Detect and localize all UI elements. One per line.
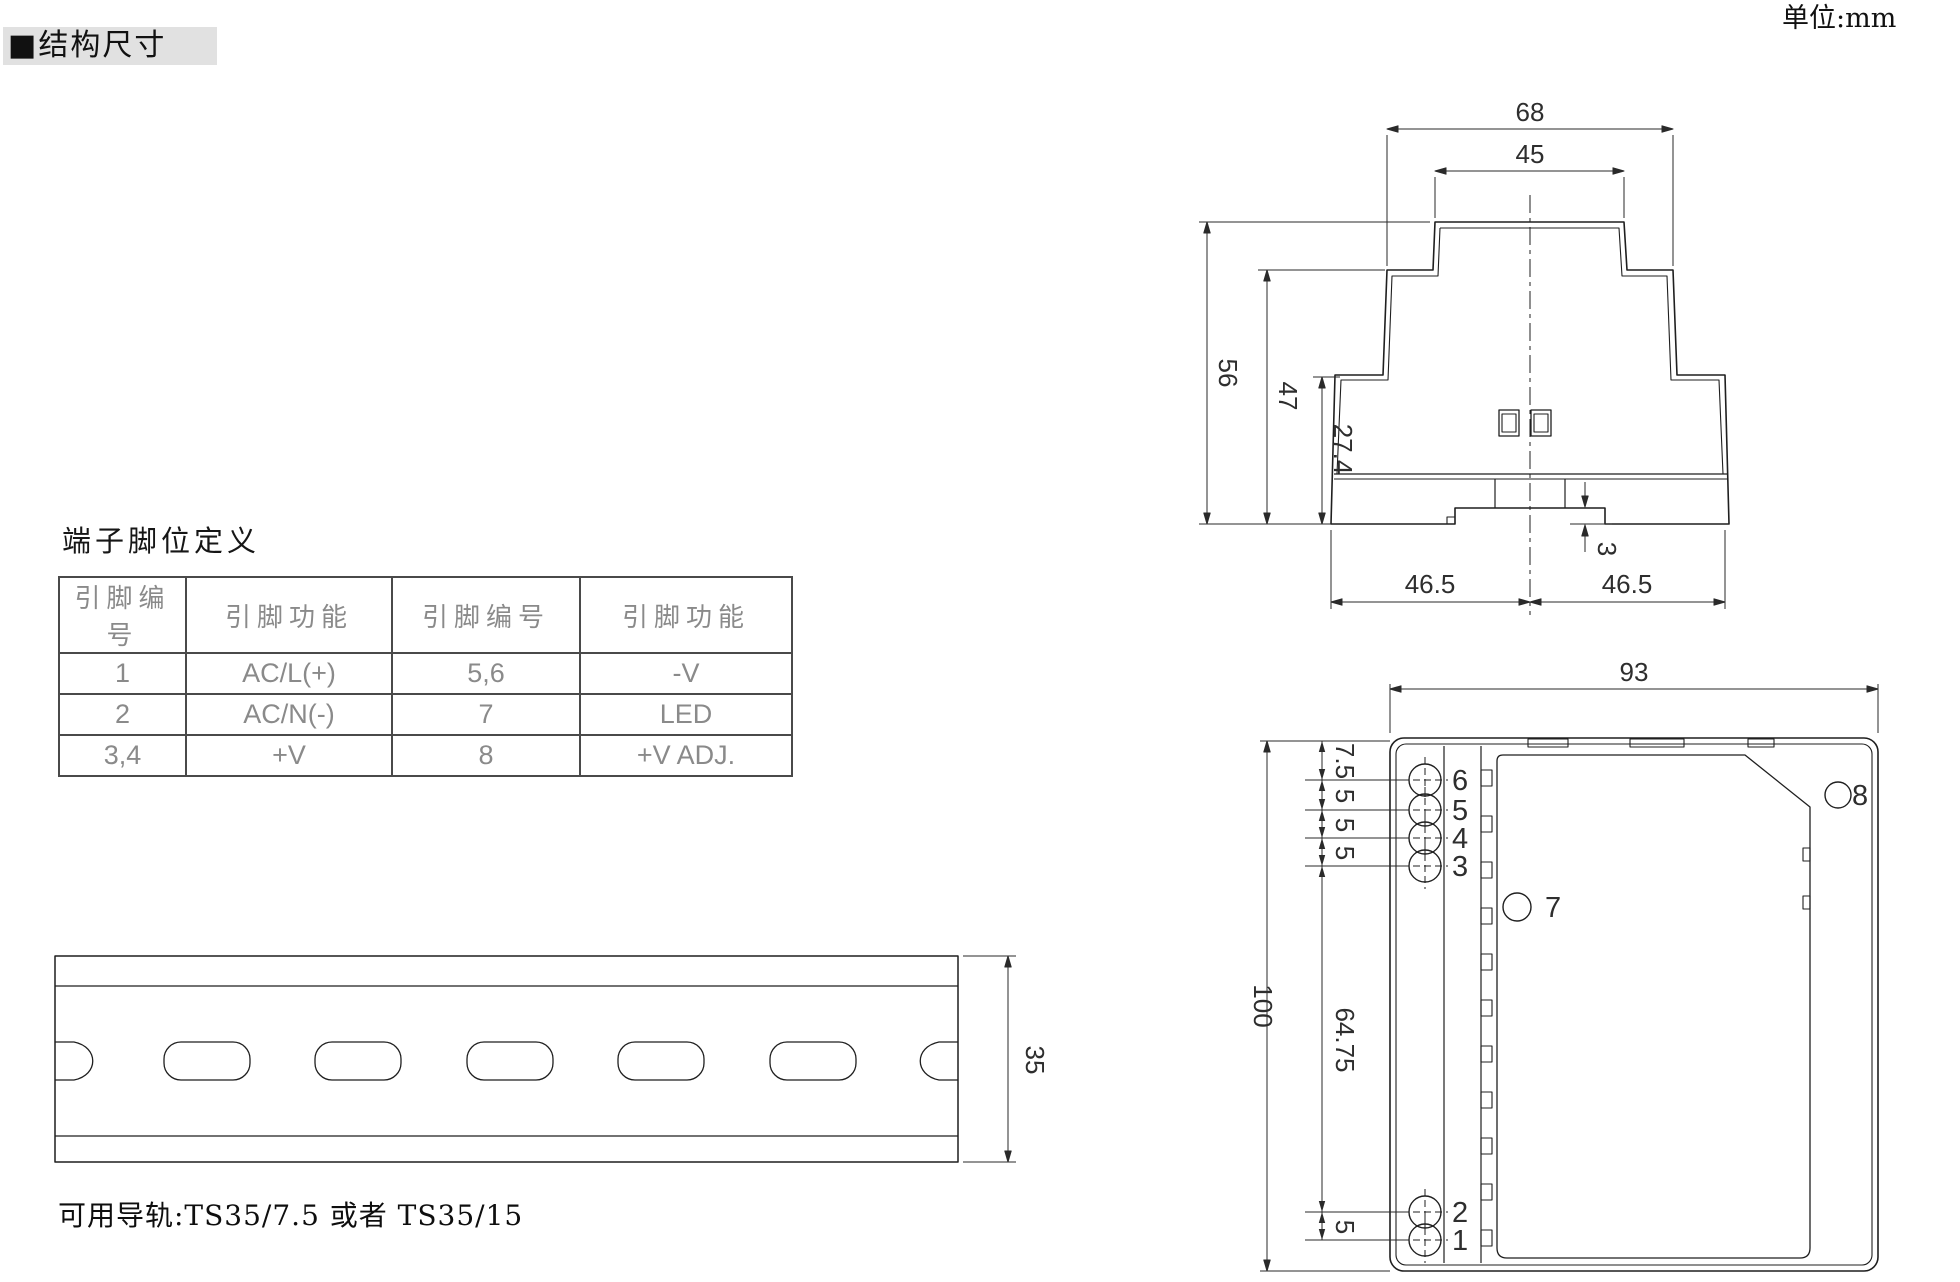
adj-potentiometer [1825,782,1851,808]
arrowhead [1662,126,1673,132]
terminal-crosshairs [1402,757,1448,1263]
arrowhead [1390,686,1401,692]
rail-slot-half-right [920,1042,958,1080]
arrowhead [1530,599,1541,605]
arrowhead [1519,599,1530,605]
foot-hook-notch [1447,517,1455,524]
arrowhead [1204,513,1210,524]
arrowhead [1714,599,1725,605]
arrowhead [1867,686,1878,692]
dim-label-5b: 5 [1330,818,1360,832]
arrowhead [1582,525,1588,536]
rail-slots [55,1042,958,1080]
din-rail-drawing [55,956,958,1162]
arrowhead [1387,126,1398,132]
led-window [1503,893,1531,921]
dim-label-100: 100 [1248,984,1278,1027]
arrowhead [1005,1151,1011,1162]
right-edge-nubs [1803,848,1810,909]
pin-number-labels: 6 5 4 3 2 1 7 8 [1452,765,1868,1257]
arrowhead [1005,956,1011,967]
dimension-drawings: 68 45 56 47 27.4 3 46.5 46.5 [0,0,1960,1282]
arrowhead [1264,270,1270,281]
pin-label-1: 1 [1452,1225,1468,1257]
dim-label-5c: 5 [1330,846,1360,860]
rail-slot-half-left [55,1042,93,1080]
arrowhead [1264,513,1270,524]
arrowhead [1264,741,1270,752]
arrowhead [1319,377,1325,388]
dim-label-27-4: 27.4 [1328,424,1358,475]
arrowhead [1264,1260,1270,1271]
dim-label-35: 35 [1020,1046,1050,1075]
rail-outline [55,956,958,1162]
top-view-drawing [1331,195,1729,615]
arrowhead [1582,496,1588,507]
pin-label-8: 8 [1852,780,1868,812]
serration-teeth [1481,770,1492,1246]
dim-label-56: 56 [1213,359,1243,388]
unit-inner-wall-right [1440,228,1723,474]
arrowhead [1613,168,1624,174]
arrowhead [1204,222,1210,233]
arrowhead [1319,513,1325,524]
dim-label-68: 68 [1516,97,1545,127]
dim-label-64-75: 64.75 [1330,1007,1360,1072]
arrowhead [1435,168,1446,174]
din-rail-dimension: 35 [963,956,1050,1162]
arrowhead [1331,599,1342,605]
dim-label-3: 3 [1592,542,1622,556]
dim-label-45: 45 [1516,139,1545,169]
dim-label-46-5-right: 46.5 [1602,569,1653,599]
pin-label-6: 6 [1452,765,1468,797]
dim-label-5-bottom: 5 [1330,1220,1360,1234]
vent-square-left-inner [1502,414,1516,432]
datasheet-page: ■结构尺寸 单位:mm 端子脚位定义 引脚编号 引脚功能 引脚编号 引脚功能 1… [0,0,1960,1282]
center-panel [1497,755,1810,1258]
top-view-dimensions [1199,126,1725,609]
dim-label-46-5-left: 46.5 [1405,569,1456,599]
dim-label-47: 47 [1273,382,1303,411]
dim-label-5a: 5 [1330,789,1360,803]
dim-label-93: 93 [1620,657,1649,687]
dim-label-7-5: 7.5 [1330,743,1360,779]
pin-label-3: 3 [1452,851,1468,883]
top-edge-notches [1528,739,1774,747]
vent-square-right-inner [1534,414,1548,432]
pin-label-7: 7 [1545,892,1561,924]
